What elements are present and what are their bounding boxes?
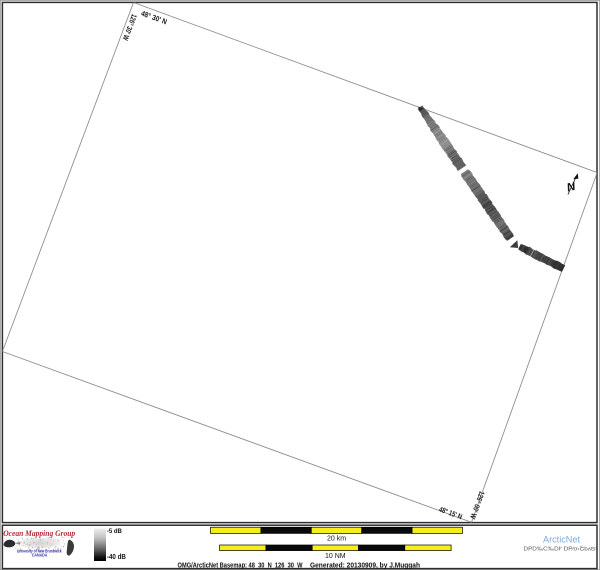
svg-text:-40 dB: -40 dB [107,552,126,561]
svg-text:20 km: 20 km [327,536,346,543]
svg-text:ArcticNet: ArcticNet [543,533,580,544]
svg-text:-5 dB: -5 dB [107,528,122,535]
svg-text:Generated: 20130909, by J.Mugg: Generated: 20130909, by J.Muggah [310,562,420,569]
svg-text:CANADA: CANADA [32,553,48,558]
svg-text:OMG/ArcticNet Basemap: 48_30_N: OMG/ArcticNet Basemap: 48_30_N_126_30_W [178,562,303,569]
svg-text:10 NM: 10 NM [325,553,346,560]
svg-text:DPD‰C‰DIʳ DP⁄σ‹Շbʌʦʳ: DPD‰C‰DIʳ DP⁄σ‹Շbʌʦʳ [524,546,598,552]
